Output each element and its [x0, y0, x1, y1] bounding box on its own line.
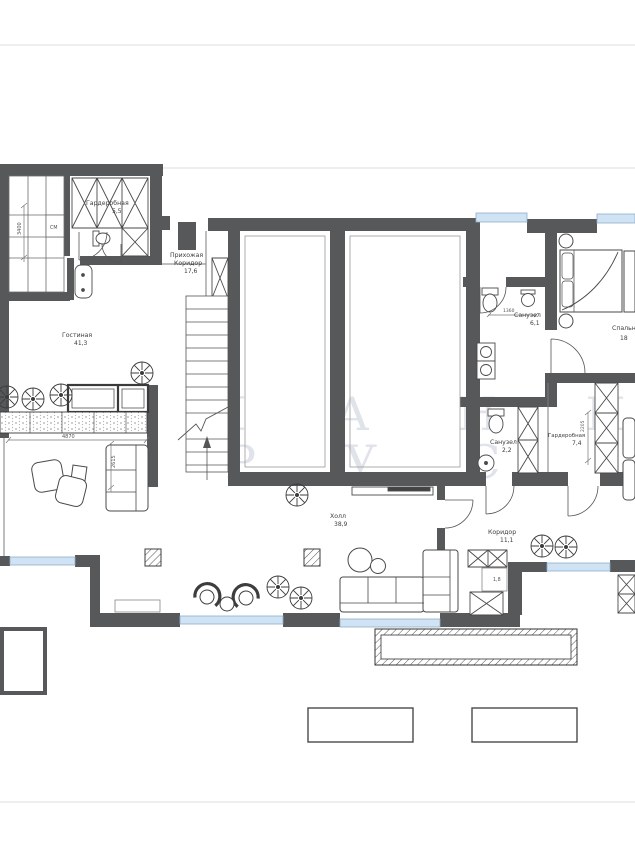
exterior-block [308, 708, 413, 742]
room-area-living: 41,3 [74, 340, 88, 347]
pillow [562, 281, 573, 307]
toilet-bowl [483, 294, 497, 312]
room-area-corridor: 11,1 [500, 537, 514, 544]
room-area-wardrobe-right: 7,4 [572, 440, 582, 447]
dim-2205: 2205 [580, 420, 586, 432]
washing-machine-label: СМ [50, 225, 58, 231]
room-label-wardrobe-right: Гардеробная [548, 433, 585, 439]
living-armchairs [31, 459, 88, 508]
dim-3400: 3400 [17, 222, 23, 235]
dim-1360: 1360 [503, 308, 515, 314]
dim-2615: 2615 [111, 455, 117, 468]
living-sofa [106, 445, 148, 511]
column [304, 549, 320, 566]
ceiling-fan-icon [267, 576, 289, 598]
pillow [562, 253, 573, 279]
tv [388, 487, 430, 491]
tv-console [352, 487, 433, 495]
planter-inner [381, 635, 571, 659]
room-label-bath-main: Санузел [514, 312, 541, 319]
window [597, 214, 635, 223]
room-area-hall: 38,9 [334, 521, 348, 528]
sink [522, 294, 535, 307]
bedroom-closet [624, 251, 635, 312]
ceiling-fan-icon [50, 384, 72, 406]
bathtub [75, 265, 92, 298]
dim-4870: 4870 [62, 434, 75, 440]
round-table [220, 597, 234, 611]
exterior-elements [2, 629, 577, 742]
columns [145, 549, 320, 566]
toilet-bowl [96, 233, 110, 244]
window [340, 619, 440, 627]
hall-coffee-tables [348, 548, 386, 574]
room-label-bedroom: Спальня [612, 325, 635, 332]
staircase [178, 296, 230, 480]
column [145, 549, 161, 566]
room-label-bath-small: Санузел [490, 439, 517, 446]
edge-chair [623, 418, 635, 458]
floor-plan-drawing: ПЛАНИ РУС [0, 0, 635, 850]
room-area-storage: 1,8 [493, 577, 501, 583]
ceiling-fan-icon [131, 362, 153, 384]
ceiling-fan-icon [286, 484, 308, 506]
room-area-bath-main: 6,1 [530, 320, 540, 327]
room-label-living: Гостиная [62, 332, 92, 339]
toilet-bowl [489, 415, 503, 433]
ceiling-fan-icon [555, 536, 577, 558]
exterior-block [472, 708, 577, 742]
room-area-bath-small: 2,2 [502, 447, 512, 454]
room-area-entry: 17,6 [184, 268, 198, 275]
kitchen [0, 385, 148, 433]
window [10, 557, 75, 565]
room-area-bedroom: 18 [620, 335, 628, 342]
room-label-hall: Холл [330, 513, 346, 520]
room-label-entry2: Коридор [174, 260, 202, 267]
room-area-wardrobe-top: 5,5 [112, 208, 122, 215]
window-bench [115, 600, 160, 612]
ceiling-fan-icon [290, 587, 312, 609]
ceiling-fan-icon [22, 388, 44, 410]
lounge-chairs [115, 580, 260, 612]
window [476, 213, 527, 222]
kitchen-counter [0, 412, 147, 433]
edge-chair [623, 460, 635, 500]
nightstand [559, 314, 573, 328]
exterior-shaft [2, 629, 45, 693]
floor-plan-sheet: ПЛАНИ РУС [0, 0, 635, 850]
window [547, 563, 610, 571]
ceiling-fan-icon [531, 535, 553, 557]
room-label-entry: Прихожая [170, 252, 203, 259]
room-label-corridor: Коридор [488, 529, 516, 536]
nightstand [559, 234, 573, 248]
window [180, 616, 283, 624]
room-label-wardrobe-top: Гардеробная [86, 199, 129, 207]
